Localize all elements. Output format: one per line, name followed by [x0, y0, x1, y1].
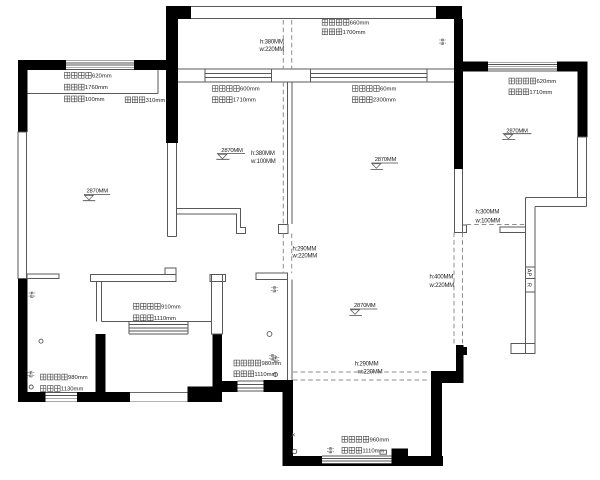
svg-text:1710mm: 1710mm [529, 90, 552, 96]
svg-text:980mm: 980mm [68, 375, 88, 381]
svg-text:AP: AP [526, 269, 532, 277]
svg-text:h:290MM: h:290MM [355, 362, 379, 368]
svg-text:2870MM: 2870MM [354, 303, 376, 309]
svg-text:h:380MM: h:380MM [260, 40, 284, 46]
svg-text:w:100MM: w:100MM [250, 159, 276, 165]
svg-text:w:220MM: w:220MM [292, 254, 318, 260]
svg-text:100mm: 100mm [85, 97, 105, 103]
svg-text:2870MM: 2870MM [375, 157, 397, 163]
svg-text:h:400MM: h:400MM [430, 274, 454, 280]
svg-text:910mm: 910mm [161, 304, 181, 310]
svg-text:960mm: 960mm [370, 437, 390, 443]
svg-text:h:380MM: h:380MM [251, 151, 275, 157]
svg-text:h:290MM: h:290MM [293, 246, 317, 252]
svg-text:w:100MM: w:100MM [475, 219, 501, 225]
svg-text:1110mm: 1110mm [154, 316, 176, 322]
svg-text:w:220MM: w:220MM [357, 370, 383, 376]
svg-text:1710mm: 1710mm [233, 98, 256, 104]
svg-text:980mm: 980mm [262, 361, 282, 367]
svg-text:w:220MM: w:220MM [259, 47, 285, 53]
svg-text:1130mm: 1130mm [61, 387, 84, 393]
svg-text:w:220MM: w:220MM [429, 283, 455, 289]
svg-text:1760mm: 1760mm [85, 85, 108, 91]
svg-text:620mm: 620mm [92, 73, 112, 79]
svg-text:60mm: 60mm [380, 87, 396, 93]
svg-text:R: R [526, 283, 532, 287]
svg-text:600mm: 600mm [240, 87, 260, 93]
svg-text:620mm: 620mm [537, 79, 557, 85]
svg-text:2870MM: 2870MM [87, 189, 109, 195]
svg-text:1700mm: 1700mm [343, 30, 366, 36]
svg-text:2300mm: 2300mm [373, 98, 396, 104]
svg-text:310mm: 310mm [146, 98, 166, 104]
svg-text:660mm: 660mm [350, 20, 370, 26]
svg-text:1110mm: 1110mm [362, 448, 384, 454]
svg-text:h:300MM: h:300MM [476, 210, 500, 216]
